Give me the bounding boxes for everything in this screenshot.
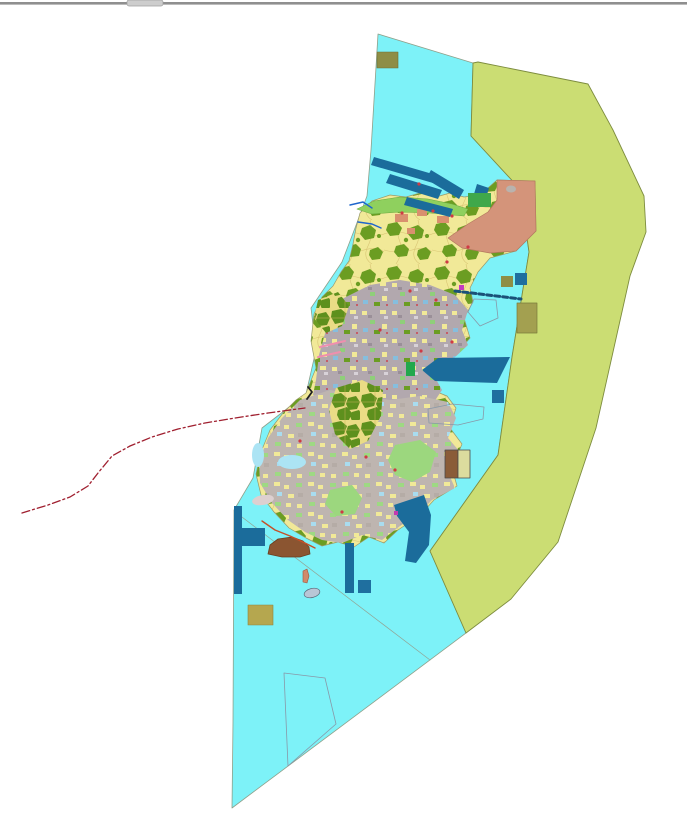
map-canvas[interactable] [0, 0, 687, 821]
window-top-edge [0, 2, 687, 5]
magenta-marker-east [459, 285, 464, 290]
red-dot [408, 289, 411, 292]
port-small-square [492, 390, 504, 403]
red-dot [434, 298, 437, 301]
khaki-square-east [501, 276, 513, 287]
lagoon-far-west [252, 443, 264, 467]
window-top-notch [127, 0, 163, 6]
red-dot [450, 340, 453, 343]
magenta-marker-south [394, 511, 398, 515]
red-dot [466, 245, 469, 248]
pier-structure-arm-west [242, 528, 265, 546]
khaki-rect-north [377, 52, 398, 68]
facility-split-rect-beige [458, 450, 470, 478]
green-strip-harbourside [406, 362, 415, 376]
red-dot [393, 468, 396, 471]
red-dot [378, 328, 381, 331]
lagoon-west [278, 455, 306, 469]
pier-structure-vertical-west [234, 506, 242, 594]
port-anchorage-polygon [422, 357, 510, 383]
red-dot [417, 182, 420, 185]
red-dot [419, 349, 422, 352]
khaki-rect-southwest [248, 605, 273, 625]
khaki-rect-buffer-edge [517, 303, 537, 333]
red-dot [298, 439, 301, 442]
salmon-zone-inner-gray [506, 186, 516, 193]
red-dot [450, 214, 453, 217]
blue-square-east [515, 273, 527, 285]
green-facility-square [468, 193, 491, 207]
village-patch-3 [437, 216, 449, 223]
facility-split-rect-brown [445, 450, 458, 478]
map-viewport[interactable] [0, 0, 687, 821]
red-dot [445, 260, 448, 263]
village-patch-1 [395, 214, 408, 222]
red-dot [400, 211, 403, 214]
red-dot [431, 209, 434, 212]
red-dot [364, 455, 367, 458]
pier-bar-south [345, 543, 354, 593]
pier-square-south [358, 580, 371, 593]
red-dot [340, 510, 343, 513]
village-patch-4 [407, 228, 415, 234]
